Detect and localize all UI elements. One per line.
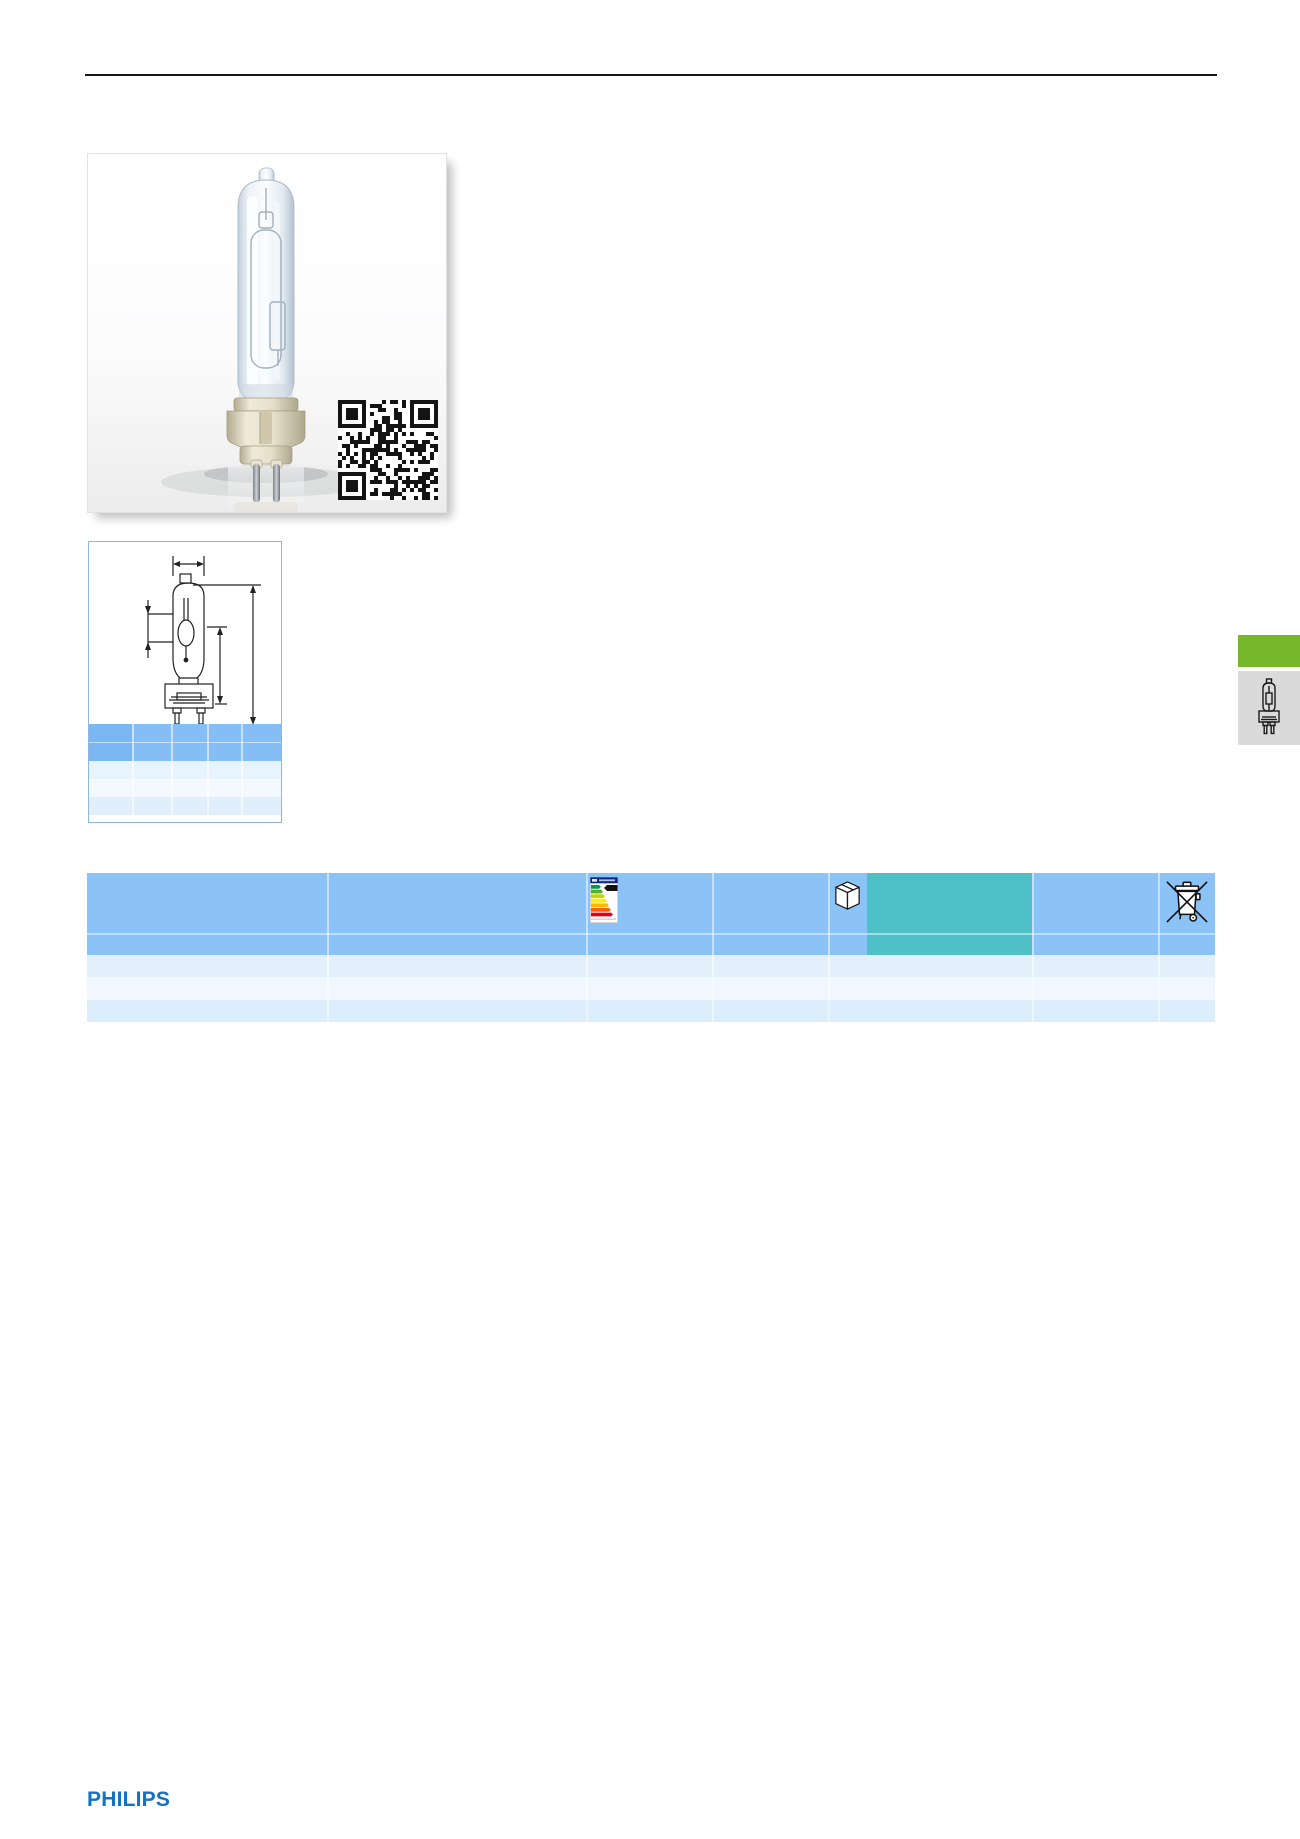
dimension-drawing-box	[88, 541, 282, 823]
philips-logo: PHILIPS	[87, 1788, 170, 1812]
product-photo-box	[87, 153, 447, 513]
lamp-type-tab	[1238, 671, 1300, 745]
dimensions-table-row	[89, 779, 281, 797]
table-header-band	[87, 873, 1215, 955]
column-divider	[171, 724, 173, 815]
lamp-outline-icon	[1256, 678, 1282, 738]
dimensions-table-row	[89, 797, 281, 815]
table-header-teal-cell	[867, 873, 1032, 955]
column-divider	[241, 724, 243, 815]
row-divider	[89, 742, 281, 743]
datasheet-page: PHILIPS	[0, 0, 1300, 1839]
lamp-dimension-drawing	[89, 548, 281, 726]
column-divider	[1158, 873, 1160, 1022]
table-row	[87, 1000, 1215, 1022]
column-divider	[828, 873, 830, 1022]
dimensions-table-row	[89, 761, 281, 779]
column-divider	[586, 873, 588, 1022]
section-color-tab	[1238, 635, 1300, 667]
table-row	[87, 977, 1215, 1000]
table-row	[87, 955, 1215, 977]
dimensions-table-header	[89, 724, 281, 761]
product-data-table	[87, 873, 1215, 1022]
column-divider	[1032, 873, 1034, 1022]
header-rule	[85, 74, 1217, 76]
column-divider	[207, 724, 209, 815]
row-divider	[87, 933, 1215, 935]
column-divider	[327, 873, 329, 1022]
column-divider	[132, 724, 134, 815]
package-box-icon	[832, 879, 863, 912]
column-divider	[712, 873, 714, 1022]
energy-label-icon	[590, 877, 618, 923]
qr-code	[338, 400, 438, 500]
weee-crossed-bin-icon	[1164, 876, 1210, 926]
